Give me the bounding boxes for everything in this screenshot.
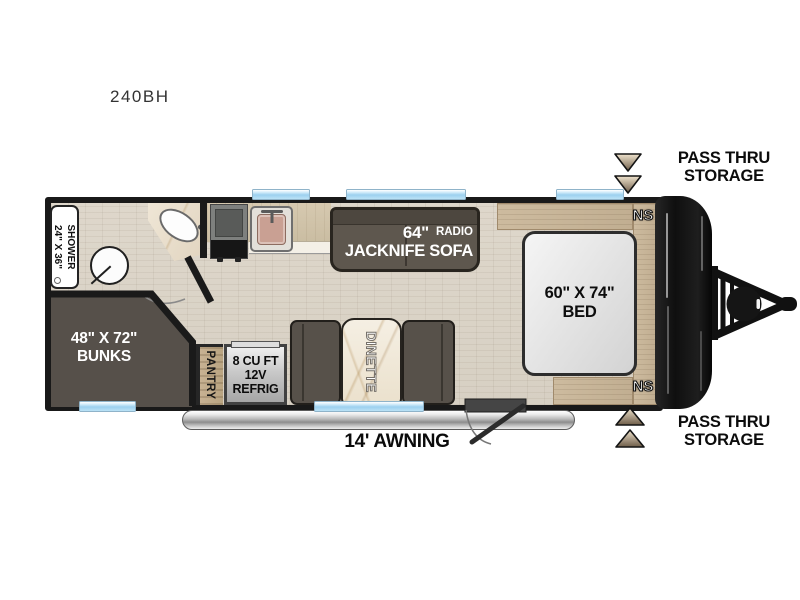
arrow-down-icon — [612, 153, 644, 195]
storage-label-bottom: PASS THRU STORAGE — [648, 414, 800, 449]
window-bunks — [79, 401, 136, 412]
window-dinette — [314, 401, 424, 412]
bathroom-door-wall — [188, 257, 212, 302]
bunk-wall — [51, 294, 193, 406]
arrow-up-icon — [614, 406, 646, 448]
cap-accent-line — [701, 216, 703, 271]
cap-accent-line — [700, 331, 702, 391]
front-cap — [655, 196, 712, 409]
window-kitchen — [252, 189, 310, 200]
storage-label-top: PASS THRU STORAGE — [648, 150, 800, 185]
window-sofa — [346, 189, 466, 200]
floorplan-canvas: 240BH 60" X 74" BED NS NS 64"RADIO JACKN… — [0, 0, 800, 600]
cap-accent-line — [666, 213, 668, 298]
bathroom-wall — [200, 203, 207, 258]
cap-accent-line — [667, 306, 669, 394]
model-title: 240BH — [110, 87, 169, 107]
